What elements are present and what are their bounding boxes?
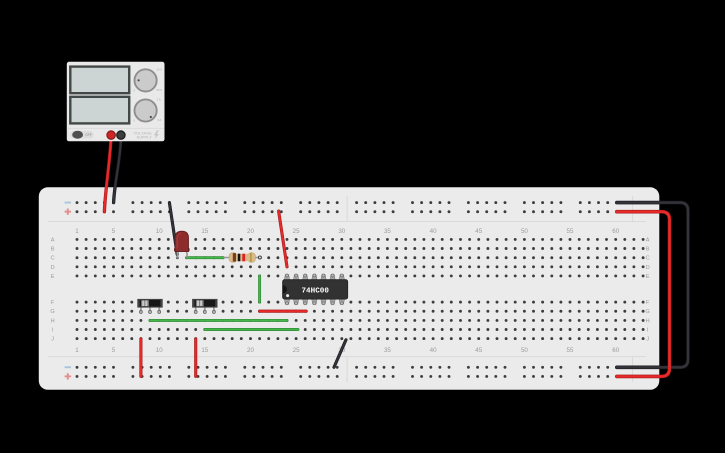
svg-text:F: F bbox=[646, 300, 650, 306]
svg-text:J: J bbox=[51, 337, 54, 343]
svg-text:OFF: OFF bbox=[85, 133, 92, 137]
svg-text:25: 25 bbox=[293, 228, 300, 235]
svg-text:10: 10 bbox=[156, 347, 163, 354]
svg-text:E: E bbox=[646, 274, 650, 280]
svg-text:J: J bbox=[646, 337, 649, 343]
svg-text:40: 40 bbox=[430, 347, 437, 354]
svg-text:3 A: 3 A bbox=[158, 118, 162, 122]
svg-text:60: 60 bbox=[612, 347, 619, 354]
svg-text:50: 50 bbox=[521, 347, 528, 354]
svg-text:55: 55 bbox=[567, 347, 574, 354]
svg-text:30: 30 bbox=[338, 228, 345, 235]
svg-text:A: A bbox=[646, 237, 650, 243]
svg-text:10 V: 10 V bbox=[157, 68, 163, 72]
svg-text:25: 25 bbox=[293, 347, 300, 354]
svg-text:E: E bbox=[51, 274, 55, 280]
svg-text:60: 60 bbox=[612, 228, 619, 235]
svg-text:15: 15 bbox=[201, 347, 208, 354]
svg-text:10: 10 bbox=[156, 228, 163, 235]
svg-text:1 A: 1 A bbox=[157, 97, 161, 101]
svg-text:G: G bbox=[645, 309, 649, 315]
svg-text:35: 35 bbox=[384, 228, 391, 235]
svg-text:50 V: 50 V bbox=[157, 88, 163, 92]
svg-text:55: 55 bbox=[567, 228, 574, 235]
svg-text:40: 40 bbox=[430, 228, 437, 235]
svg-text:A: A bbox=[51, 237, 55, 243]
svg-text:45: 45 bbox=[475, 347, 482, 354]
svg-text:1: 1 bbox=[75, 228, 79, 235]
svg-text:H: H bbox=[51, 318, 55, 324]
svg-text:H: H bbox=[646, 318, 650, 324]
svg-text:20: 20 bbox=[247, 228, 254, 235]
svg-text:C: C bbox=[646, 256, 650, 262]
svg-text:35: 35 bbox=[384, 347, 391, 354]
svg-text:5: 5 bbox=[112, 347, 116, 354]
svg-text:D: D bbox=[646, 265, 650, 271]
svg-text:74HC00: 74HC00 bbox=[301, 287, 329, 295]
svg-text:5: 5 bbox=[112, 228, 116, 235]
svg-text:15: 15 bbox=[201, 228, 208, 235]
svg-text:1: 1 bbox=[75, 347, 79, 354]
svg-text:B: B bbox=[51, 247, 55, 253]
svg-text:G: G bbox=[50, 309, 54, 315]
svg-text:50: 50 bbox=[521, 228, 528, 235]
svg-text:C: C bbox=[51, 256, 55, 262]
svg-text:F: F bbox=[51, 300, 55, 306]
svg-text:D: D bbox=[51, 265, 55, 271]
svg-text:SUPPLY: SUPPLY bbox=[136, 135, 152, 140]
svg-text:45: 45 bbox=[475, 228, 482, 235]
svg-text:B: B bbox=[646, 247, 650, 253]
svg-text:20: 20 bbox=[247, 347, 254, 354]
